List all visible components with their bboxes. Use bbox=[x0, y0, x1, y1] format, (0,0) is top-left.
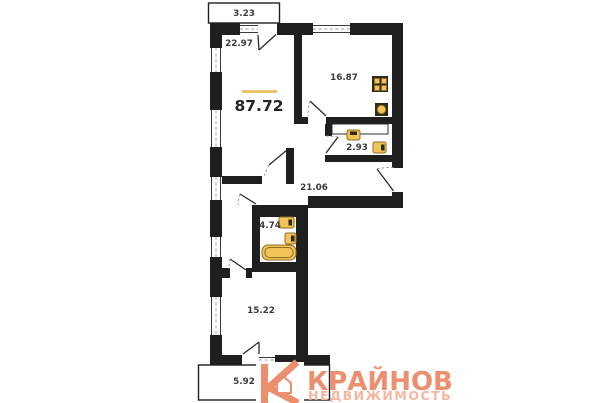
kitchen-sink-icon bbox=[375, 103, 388, 116]
window bbox=[212, 110, 221, 147]
total-area: 87.72 bbox=[234, 92, 283, 116]
entrance-door bbox=[377, 167, 394, 191]
balcony-bottom-area-label: 5.92 bbox=[233, 377, 255, 387]
balcony-top-area-label: 3.23 bbox=[233, 9, 255, 19]
living-room-door bbox=[264, 150, 287, 176]
hallway-area-label: 21.06 bbox=[300, 183, 328, 193]
living-room-area-label: 22.97 bbox=[225, 39, 253, 49]
kitchen-door bbox=[308, 101, 326, 116]
krainov-logo: КРАЙНОВ НЕДВИЖИМОСТЬ bbox=[256, 362, 453, 403]
wc-sink-icon bbox=[373, 142, 386, 153]
floor-plan: 3.23 22.97 16.87 2.93 21.06 4.74 15.22 5… bbox=[0, 0, 605, 403]
bathroom-sink-icon bbox=[279, 217, 294, 228]
wc-area-label: 2.93 bbox=[346, 143, 368, 153]
toilet-icon bbox=[347, 130, 360, 140]
window bbox=[313, 26, 350, 33]
wc-door bbox=[326, 136, 338, 153]
window bbox=[212, 48, 221, 72]
bathroom-area-label: 4.74 bbox=[259, 221, 281, 231]
window bbox=[212, 237, 221, 257]
window bbox=[240, 26, 258, 33]
bedroom-door bbox=[229, 259, 246, 270]
balcony-door bbox=[258, 35, 276, 51]
bathroom-door bbox=[238, 194, 256, 205]
bathtub-icon bbox=[262, 245, 296, 260]
window bbox=[212, 177, 221, 200]
window bbox=[259, 358, 275, 363]
bedroom-balcony-door bbox=[243, 342, 259, 354]
bedroom-area-label: 15.22 bbox=[247, 306, 275, 316]
kitchen-area-label: 16.87 bbox=[330, 73, 358, 83]
bathroom-toilet-icon bbox=[285, 233, 296, 244]
total-area-label: 87.72 bbox=[234, 97, 283, 115]
stove-icon bbox=[372, 76, 388, 92]
brand-tagline: НЕДВИЖИМОСТЬ bbox=[308, 388, 452, 403]
floor-plan-page: 3.23 22.97 16.87 2.93 21.06 4.74 15.22 5… bbox=[0, 0, 605, 403]
window bbox=[212, 297, 221, 335]
